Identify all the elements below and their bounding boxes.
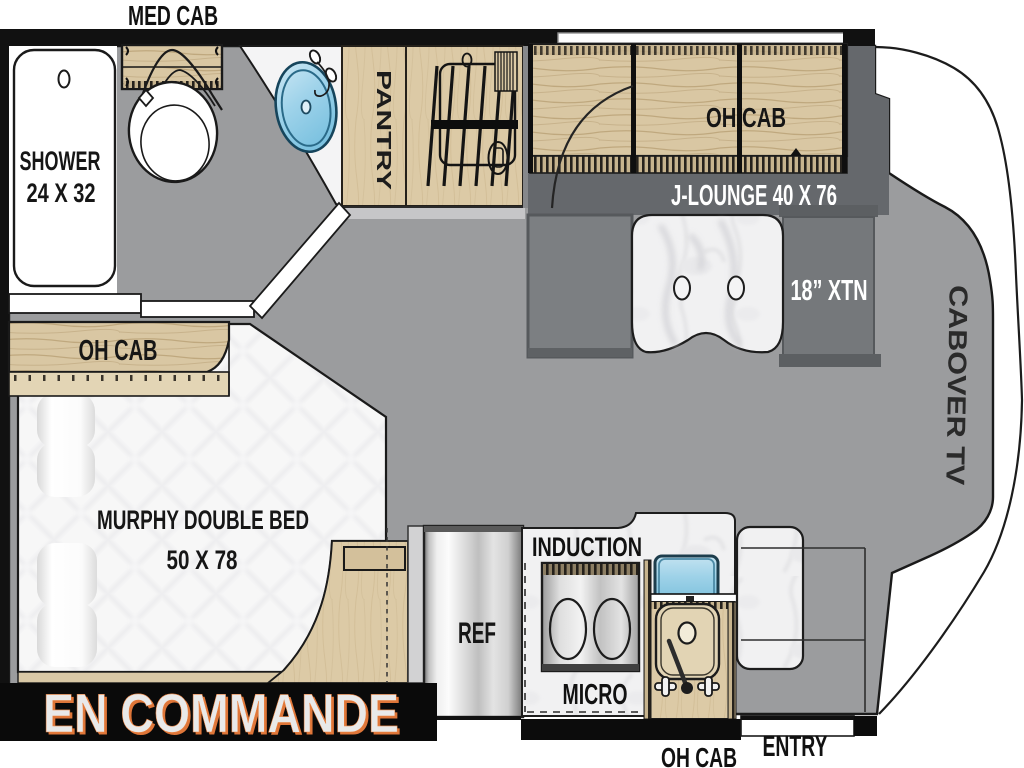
svg-text:MURPHY DOUBLE BED: MURPHY DOUBLE BED — [97, 505, 309, 535]
svg-text:MED CAB: MED CAB — [128, 0, 218, 31]
svg-text:INDUCTION: INDUCTION — [532, 532, 642, 562]
svg-text:50 X 78: 50 X 78 — [167, 545, 238, 575]
svg-text:PANTRY: PANTRY — [372, 70, 394, 191]
svg-text:SHOWER: SHOWER — [20, 146, 101, 176]
svg-text:OH CAB: OH CAB — [661, 742, 737, 768]
svg-text:18” XTN: 18” XTN — [791, 275, 868, 307]
svg-text:24 X 32: 24 X 32 — [27, 178, 96, 208]
svg-text:ENTRY: ENTRY — [763, 730, 828, 763]
svg-text:MICRO: MICRO — [563, 679, 628, 711]
svg-text:EN COMMANDE: EN COMMANDE — [43, 682, 399, 744]
svg-text:OH CAB: OH CAB — [79, 335, 158, 367]
svg-text:REF: REF — [458, 617, 496, 650]
svg-text:CABOVER TV: CABOVER TV — [940, 285, 973, 486]
svg-text:OH CAB: OH CAB — [706, 102, 786, 133]
